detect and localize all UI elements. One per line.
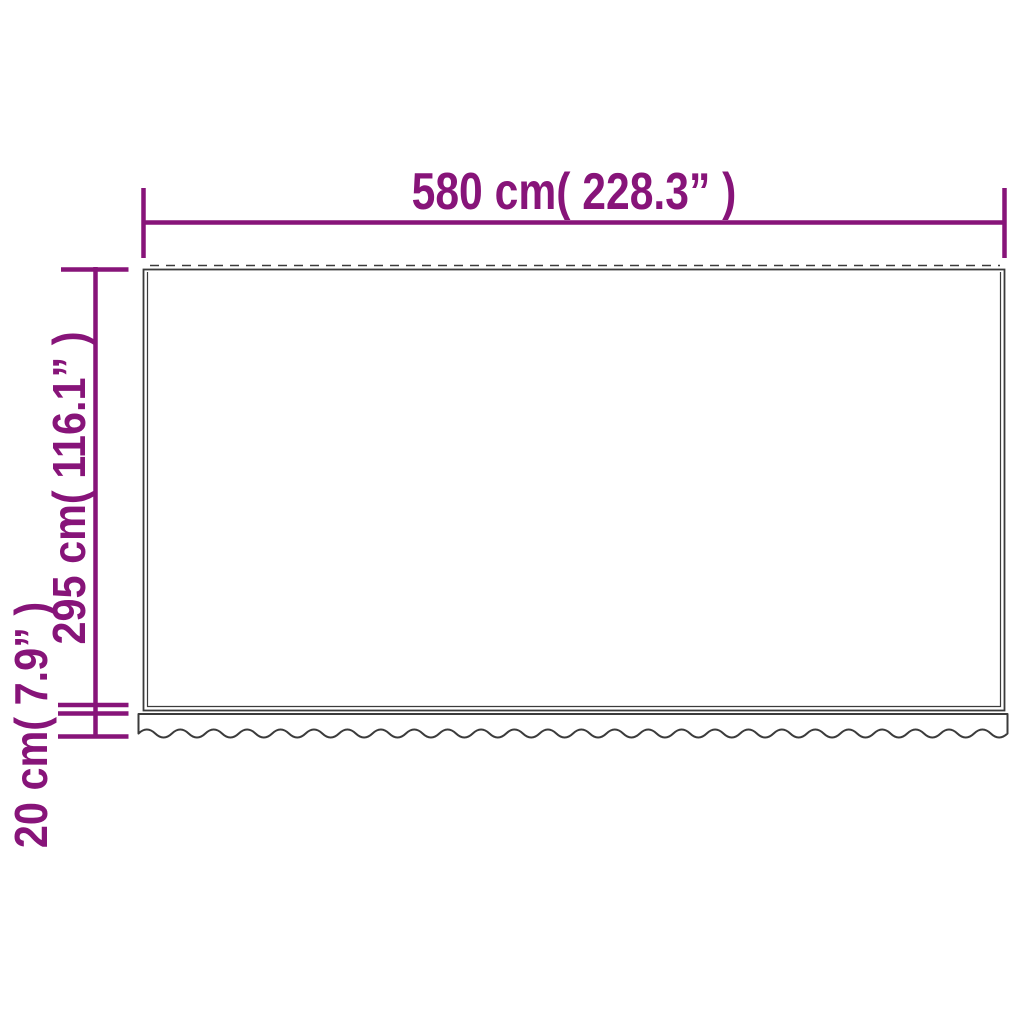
valance-outline [138, 714, 1007, 738]
diagram-canvas [0, 0, 1024, 1024]
width-dimension-label: 580 cm( 228.3” ) [412, 166, 737, 218]
height-dimension-label: 295 cm( 116.1” ) [46, 331, 92, 644]
awning-fabric-dimension-diagram: 580 cm( 228.3” ) 295 cm( 116.1” ) 20 cm(… [0, 0, 1024, 1024]
fabric-outline [144, 270, 1005, 711]
fabric-panel [138, 266, 1007, 738]
valance-dimension-label: 20 cm( 7.9” ) [8, 602, 54, 848]
